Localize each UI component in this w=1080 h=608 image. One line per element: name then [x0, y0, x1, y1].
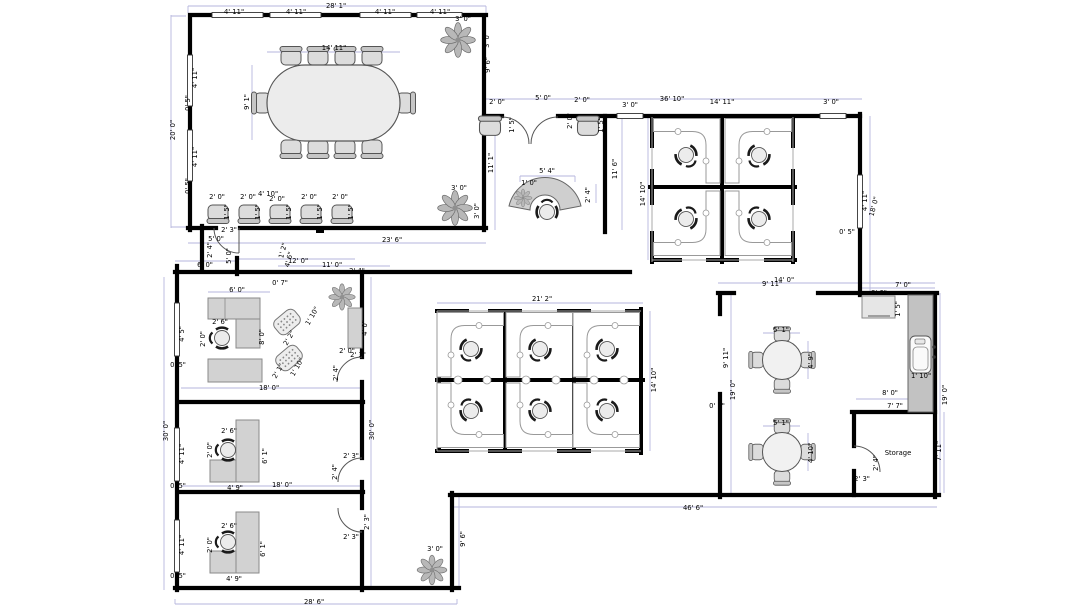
dimension-label: 2' 4": [584, 187, 592, 203]
l-desk-return: [210, 460, 236, 482]
dimension-label: 4' 10": [807, 443, 815, 463]
dimension-label: 5' 0": [535, 94, 551, 102]
u-desk-side: [236, 319, 260, 348]
guest-chair: [478, 116, 501, 135]
dimension-label: 2' 6": [221, 522, 237, 530]
dimension-label: 11' 6": [611, 159, 619, 179]
dimension-label: 5' 1": [773, 326, 789, 334]
dimension-label: 2' 4": [872, 455, 880, 471]
dimension-label: 14' 10": [650, 368, 658, 392]
round-table: [749, 419, 815, 485]
plant-icon: [438, 191, 473, 226]
dimension-label: 2' 0": [332, 193, 348, 201]
cubicle: [506, 313, 573, 378]
cubicle: [573, 313, 640, 378]
dimension-label: 2' 3": [350, 351, 366, 359]
dimension-label: 2' 0": [269, 195, 285, 203]
floor-plan-page: 28' 1"4' 11"4' 11"4' 11"4' 11"3' 0"3' 0"…: [0, 0, 1080, 608]
dimension-label: 5' 1": [773, 419, 789, 427]
dimension-label: 2' 0": [199, 331, 207, 347]
credenza: [348, 308, 362, 348]
dimension-label: 2' 4": [332, 365, 340, 381]
office2-door: [338, 458, 362, 482]
dimension-label: 1' 5": [347, 204, 355, 220]
cubicle: [437, 383, 504, 448]
faucet-knob: [932, 345, 936, 349]
dimension-label: 1' 5": [508, 117, 516, 133]
dimension-label: 28' 6": [304, 598, 324, 606]
l-desk: [236, 512, 259, 573]
south-walls: [175, 493, 939, 590]
dimension-label: 2' 6": [221, 427, 237, 435]
cubicle-partitions-center: [437, 309, 643, 453]
dimension-label: 1' 5": [254, 204, 262, 220]
dimension-label: 4' 11": [224, 8, 244, 16]
u-desk-top: [208, 298, 260, 319]
dimension-label: 8' 0": [882, 389, 898, 397]
dimension-label: 4' 11": [430, 8, 450, 16]
plant-icon: [329, 284, 355, 310]
dimension-label: 19' 0": [729, 380, 737, 400]
chair: [280, 47, 302, 66]
dimension-label: 0' 5": [170, 361, 186, 369]
l-desk: [236, 420, 259, 482]
dimension-label: 3' 0": [473, 203, 481, 219]
dimension-label: 3' 0": [451, 184, 467, 192]
break-room-walls: [718, 293, 937, 497]
dimension-label: 4' 9": [226, 575, 242, 583]
dimension-label: 1' 5": [894, 301, 902, 317]
dimension-label: 20' 0": [169, 120, 177, 140]
dimension-label: 1' 5": [597, 117, 605, 133]
cubicle: [725, 191, 792, 256]
dimension-label: 2' 6": [212, 318, 228, 326]
dimension-label: 7' 0": [895, 281, 911, 289]
l-desk-return: [210, 551, 236, 573]
dimension-label: 9' 11": [722, 348, 730, 368]
dimension-label: 14' 10": [639, 182, 647, 206]
dimension-label: 4' 11": [191, 147, 199, 167]
dimension-label: 21' 2": [532, 295, 552, 303]
dimension-label: 2' 4": [349, 267, 365, 275]
dimension-label: 3' 0": [823, 98, 839, 106]
dimension-label: 28' 1": [326, 2, 346, 10]
dimension-label: 1' 5": [316, 204, 324, 220]
cubicle: [725, 119, 792, 184]
chair: [334, 140, 356, 159]
dimension-label: 0' 5": [170, 572, 186, 580]
dimension-label: 7' 7": [887, 402, 903, 410]
dimension-label: 1' 5": [223, 204, 231, 220]
dimension-label: 4' 11": [286, 8, 306, 16]
dimension-label: 2' 0": [566, 113, 574, 129]
conference-table: [267, 65, 400, 141]
dimension-label: 3' 0": [427, 545, 443, 553]
dimension-label: 4' 11": [178, 535, 186, 555]
dimension-label: 0' 7": [272, 279, 288, 287]
dimension-label: 6' 1": [259, 541, 267, 557]
chair: [280, 140, 302, 159]
dimension-label: 4' 11": [191, 68, 199, 88]
dimension-label: 9' 6": [484, 57, 492, 73]
dimension-label: 1' 5": [285, 204, 293, 220]
dimension-label: 5' 0": [208, 235, 224, 243]
dimension-label: 30' 0": [368, 420, 376, 440]
dimension-label: 2' 0": [206, 537, 214, 553]
dimension-label: 6' 1": [261, 448, 269, 464]
plant-icon: [441, 23, 476, 58]
dimension-label: 6' 0": [229, 286, 245, 294]
dimension-label: 9' 1": [243, 94, 251, 110]
dimension-label: 19' 0": [941, 385, 949, 405]
dimension-label: 1' 0": [521, 179, 537, 187]
dimension-label: 1' 10": [304, 305, 321, 326]
dimension-label: 14' 11": [322, 44, 346, 52]
dimension-label: 0' 7": [709, 402, 725, 410]
dimension-label: 2' 0": [206, 442, 214, 458]
cubicle-partitions-ne: [650, 116, 795, 262]
faucet-knob: [932, 355, 936, 359]
dimension-label: 0' 5": [184, 95, 192, 111]
dimension-label: 3' 0": [622, 101, 638, 109]
chair: [210, 328, 230, 349]
cubicle: [437, 313, 504, 378]
appliance: [862, 296, 895, 318]
u-desk-bottom: [208, 359, 262, 382]
dimension-label: 2' 0": [301, 193, 317, 201]
dimension-label: 2' 0": [240, 193, 256, 201]
dimension-label: 2' 0": [574, 96, 590, 104]
dimension-label: 11' 1": [487, 153, 495, 173]
plant-icon: [514, 189, 532, 207]
chair: [216, 532, 236, 553]
floor-plan-canvas: 28' 1"4' 11"4' 11"4' 11"4' 11"3' 0"3' 0"…: [0, 0, 1080, 608]
dimension-label: 36' 10": [660, 95, 684, 103]
chair: [537, 200, 558, 220]
dimension-label: 3' 0": [871, 289, 887, 297]
dimension-label: 2' 3": [854, 475, 870, 483]
office1-door: [337, 357, 362, 382]
chair: [307, 140, 329, 159]
chair: [361, 140, 383, 159]
dimension-label: 2' 3": [343, 452, 359, 460]
cubicle: [654, 191, 721, 256]
dimension-label: 3' 0": [483, 32, 491, 48]
dimension-label: 4' 11": [861, 191, 869, 211]
dimension-label: 2' 3": [343, 533, 359, 541]
dimension-label: 11' 0": [322, 261, 342, 269]
dimension-label: 3' 0": [455, 15, 471, 23]
dimension-label: 4' 5": [178, 326, 186, 342]
dimension-label: 2' 0": [489, 98, 505, 106]
dimension-label: 18' 0": [272, 481, 292, 489]
dimension-label: 2' 4": [206, 242, 214, 258]
dimension-label: 2' 3": [363, 514, 371, 530]
dimension-label: 6' 0": [197, 261, 213, 269]
round-table: [749, 327, 815, 393]
dimension-label: 18' 0": [259, 384, 279, 392]
dimension-label: 5' 4": [539, 167, 555, 175]
dimension-label: 8' 0": [258, 329, 266, 345]
cubicle: [654, 119, 721, 184]
room-label-storage: Storage: [885, 449, 912, 457]
dimension-label: 4' 9": [807, 353, 815, 369]
dimension-label: 7' 11": [935, 441, 943, 461]
dimension-label: 2' 0": [209, 193, 225, 201]
soap-tray: [915, 339, 925, 344]
office3-door: [338, 508, 362, 532]
dimension-label: 14' 11": [710, 98, 734, 106]
dimension-label: 0' 5": [839, 228, 855, 236]
dimension-label: 5' 0": [225, 248, 233, 264]
dimension-label: 2' 3": [221, 226, 237, 234]
dimension-label: 30' 0": [162, 421, 170, 441]
dimension-label: 4' 0": [361, 320, 369, 336]
dimension-label: 4' 11": [178, 444, 186, 464]
dimension-label: 12' 0": [288, 257, 308, 265]
plant-icon: [417, 555, 447, 585]
dimension-label: 18' 0": [868, 196, 881, 218]
door-stop: [316, 226, 324, 233]
dimension-label: 9' 11": [762, 280, 782, 288]
dimension-label: 0' 5": [184, 178, 192, 194]
dimension-label: 4' 9": [227, 484, 243, 492]
dimension-label: 0' 5": [170, 482, 186, 490]
chair: [361, 47, 383, 66]
dimension-label: 1' 10": [911, 372, 931, 380]
dimension-label: 2' 4": [331, 464, 339, 480]
cubicle: [506, 383, 573, 448]
dimension-label: 23' 6": [382, 236, 402, 244]
dimension-label: 4' 11": [375, 8, 395, 16]
dimension-label: 46' 6": [683, 504, 703, 512]
cubicle: [573, 383, 640, 448]
chair: [216, 440, 236, 461]
dimension-label: 9' 6": [459, 531, 467, 547]
